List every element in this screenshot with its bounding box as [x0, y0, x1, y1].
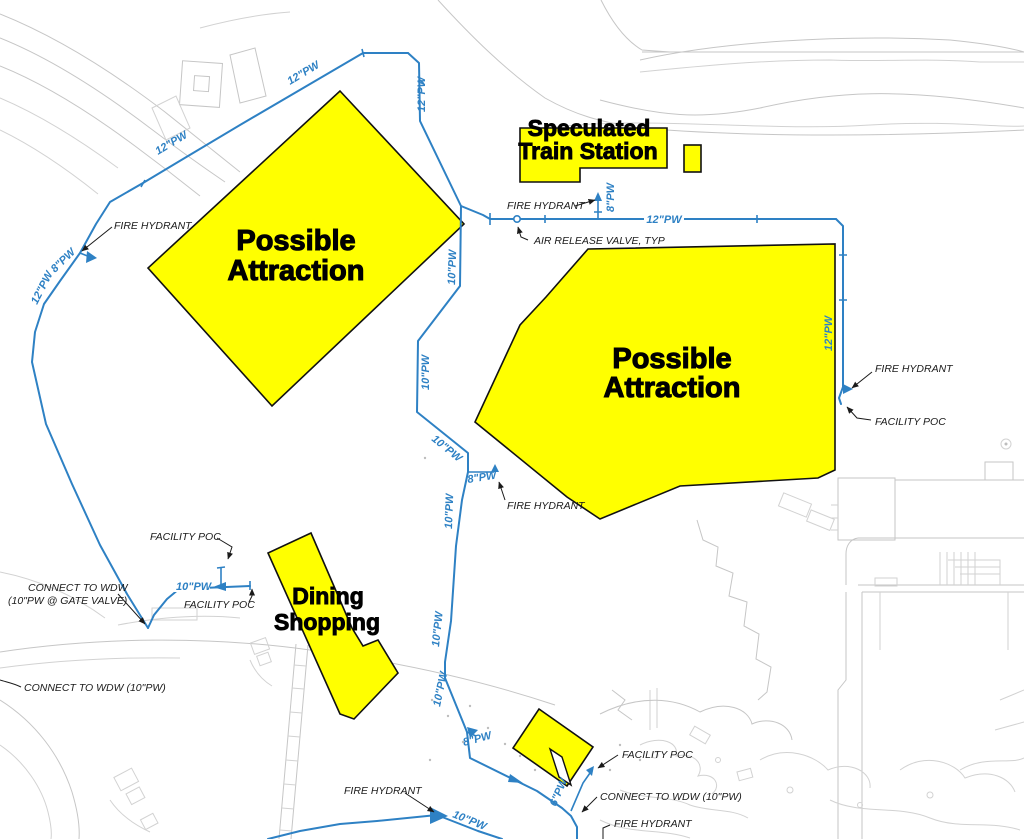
leader-connect-wdw-left — [0, 680, 21, 687]
leader-fire-hydrant-mid — [499, 482, 505, 500]
facility-poc-label: FACILITY POC — [622, 749, 693, 761]
fire-hydrant-label: FIRE HYDRANT — [114, 220, 193, 232]
possible-attraction-east-label-line2: Attraction — [604, 372, 741, 404]
leader-fire-hydrant-west — [82, 227, 112, 251]
air-release-valve-symbol — [514, 216, 520, 222]
pipe-label-12pw: 12"PW — [646, 214, 683, 226]
connect-to-wdw-label: CONNECT TO WDW (10"PW) — [600, 791, 742, 803]
fire-hydrant-label: FIRE HYDRANT — [614, 818, 693, 830]
pipe-label-10pw: 10"PW — [429, 433, 465, 465]
possible-attraction-east-label-line1: Possible — [612, 343, 731, 375]
leader-facility-poc-south — [598, 755, 618, 768]
pipe-label-10pw: 10"PW — [430, 609, 446, 647]
fire-hydrant-symbol-bottom — [430, 807, 448, 824]
fire-hydrant-symbol-station — [594, 192, 602, 201]
highlighted-areas — [148, 91, 835, 786]
leader-connect-wdw-south — [582, 797, 597, 812]
poc-arrow-6in — [586, 766, 594, 776]
connect-to-wdw-gate-valve-label-line1: CONNECT TO WDW — [28, 582, 129, 594]
fire-hydrant-label: FIRE HYDRANT — [507, 200, 586, 212]
south-facility-area — [513, 709, 593, 786]
pipe-label-12pw: 12"PW — [29, 268, 56, 306]
air-release-valve-label: AIR RELEASE VALVE, TYP — [533, 235, 665, 247]
connect-to-wdw-label: CONNECT TO WDW (10"PW) — [24, 682, 166, 694]
pipe-label-10pw: 10"PW — [176, 581, 213, 593]
possible-attraction-nw-label-line2: Attraction — [228, 255, 365, 287]
fire-hydrant-symbol-west — [86, 251, 97, 263]
leader-fire-hydrant-far-south — [603, 825, 610, 839]
pipe-label-12pw: 12"PW — [153, 128, 191, 157]
leader-fire-hydrant-east — [852, 372, 872, 388]
facility-poc-label: FACILITY POC — [184, 599, 255, 611]
pipe-label-10pw: 10"PW — [420, 353, 432, 390]
dining-shopping-label-line2: Shopping — [274, 609, 380, 635]
existing-building-footprint-nw — [180, 61, 223, 108]
facility-poc-label: FACILITY POC — [875, 416, 946, 428]
leader-air-release-valve — [518, 227, 528, 240]
fire-hydrant-label: FIRE HYDRANT — [875, 363, 954, 375]
pipe-label-10pw: 10"PW — [446, 248, 459, 285]
train-station-area-annex — [684, 145, 701, 172]
connect-to-wdw-gate-valve-label-line2: (10"PW @ GATE VALVE) — [8, 595, 127, 607]
facility-poc-label: FACILITY POC — [150, 531, 221, 543]
site-plan-drawing: 12"PW 12"PW 12"PW 8"PW 12"PW 8"PW 12"PW … — [0, 0, 1024, 839]
fire-hydrant-label: FIRE HYDRANT — [507, 500, 586, 512]
pipe-label-10pw: 10"PW — [451, 809, 490, 834]
site-plan-canvas: 12"PW 12"PW 12"PW 8"PW 12"PW 8"PW 12"PW … — [0, 0, 1024, 839]
fire-hydrant-label: FIRE HYDRANT — [344, 785, 423, 797]
pipe-label-12pw: 12"PW — [285, 58, 323, 87]
pipe-east-vertical-12in — [836, 219, 843, 404]
pipe-label-10pw: 10"PW — [431, 669, 450, 707]
pipe-label-10pw: 10"PW — [443, 492, 456, 529]
service-branch-6in — [571, 773, 590, 811]
possible-attraction-nw-label-line1: Possible — [236, 225, 355, 257]
train-station-label-line2: Train Station — [518, 138, 657, 164]
fire-hydrant-symbol-east — [843, 384, 853, 394]
dining-shopping-label-line1: Dining — [292, 583, 364, 609]
flow-arrow-south-main — [508, 774, 523, 783]
pipe-label-12pw: 12"PW — [823, 314, 835, 351]
leader-facility-poc-east — [847, 407, 871, 420]
pipe-label-12pw: 12"PW — [416, 75, 428, 112]
flow-arrow-southwest — [213, 582, 226, 591]
pipe-label-8pw: 8"PW — [605, 181, 617, 212]
